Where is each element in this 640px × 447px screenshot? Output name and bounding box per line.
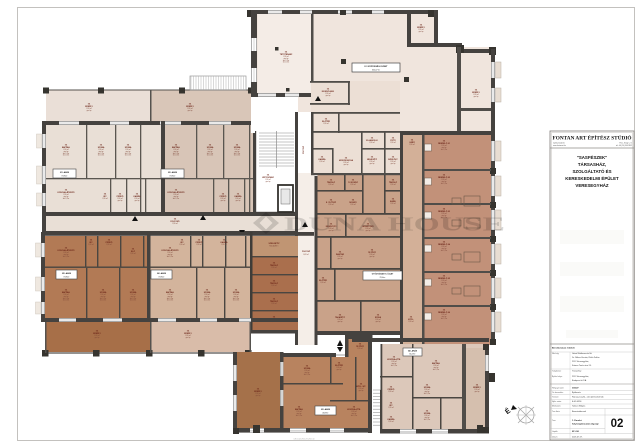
svg-text:MELEGÍTŐ: MELEGÍTŐ bbox=[367, 158, 377, 161]
svg-text:12,45 m2: 12,45 m2 bbox=[88, 244, 94, 246]
svg-text:TETŐTERASZ: TETŐTERASZ bbox=[280, 53, 293, 56]
svg-text:RENDELŐ 05: RENDELŐ 05 bbox=[438, 277, 450, 280]
svg-text:RENDELŐ 02: RENDELŐ 02 bbox=[438, 176, 450, 179]
svg-text:bm: 2,70m: bm: 2,70m bbox=[441, 183, 448, 185]
svg-text:KONYHA+ÉTK.: KONYHA+ÉTK. bbox=[387, 358, 401, 361]
svg-text:KONYHA+ÉTKEZŐ: KONYHA+ÉTKEZŐ bbox=[58, 191, 75, 194]
svg-text:NAPPALI: NAPPALI bbox=[295, 408, 304, 411]
svg-text:0,90 1,50 0,90 2,70 0,90: 0,90 1,50 0,90 2,70 0,90 1,50 bbox=[294, 439, 315, 441]
svg-text:12,45 m2: 12,45 m2 bbox=[167, 252, 173, 254]
svg-text:VÁRÓ: VÁRÓ bbox=[409, 141, 415, 144]
svg-text:12,45 m2: 12,45 m2 bbox=[172, 223, 178, 225]
svg-text:bm: 2,70m: bm: 2,70m bbox=[351, 415, 358, 417]
svg-text:12,45 m2: 12,45 m2 bbox=[130, 253, 136, 255]
svg-text:Terv:: Terv: bbox=[552, 420, 556, 422]
svg-text:bm: 2,70m: bm: 2,70m bbox=[130, 298, 137, 300]
svg-text:SZOBA: SZOBA bbox=[125, 146, 132, 149]
svg-text:12,45 m2: 12,45 m2 bbox=[100, 294, 106, 296]
svg-text:12,45 m2: 12,45 m2 bbox=[474, 389, 480, 391]
svg-text:2021.07.27.: 2021.07.27. bbox=[572, 437, 583, 439]
svg-text:12,45 m2: 12,45 m2 bbox=[220, 198, 226, 200]
svg-text:Építés helye:: Építés helye: bbox=[552, 375, 563, 378]
svg-text:12,45 m2: 12,45 m2 bbox=[325, 93, 331, 95]
svg-text:12,45 m2: 12,45 m2 bbox=[441, 179, 447, 181]
svg-text:12,45 m2: 12,45 m2 bbox=[473, 94, 479, 96]
svg-text:bm: 2,70m: bm: 2,70m bbox=[63, 256, 70, 258]
svg-text:12,45 m2: 12,45 m2 bbox=[323, 123, 329, 125]
svg-text:bm: 2,70m: bm: 2,70m bbox=[130, 300, 137, 302]
svg-text:01 LAKÁS: 01 LAKÁS bbox=[60, 171, 70, 174]
svg-text:Dátum:: Dátum: bbox=[552, 436, 558, 439]
svg-text:FOLYOSÓ: FOLYOSÓ bbox=[302, 250, 311, 253]
svg-text:12,45 m2: 12,45 m2 bbox=[351, 411, 357, 413]
svg-text:RENDELŐ 01: RENDELŐ 01 bbox=[438, 142, 450, 145]
svg-text:73,95m²: 73,95m² bbox=[158, 276, 165, 279]
svg-text:12,45 m2: 12,45 m2 bbox=[357, 348, 363, 350]
svg-text:Öv. besorolás:: Öv. besorolás: bbox=[552, 391, 564, 394]
svg-text:bm: 2,70m: bm: 2,70m bbox=[173, 153, 180, 155]
svg-text:bm: 2,70m: bm: 2,70m bbox=[283, 60, 290, 62]
svg-text:12,45 m2: 12,45 m2 bbox=[204, 294, 210, 296]
svg-text:2112 Veresegyház,: 2112 Veresegyház, bbox=[572, 361, 589, 363]
svg-text:06 LAKÁS: 06 LAKÁS bbox=[157, 272, 167, 275]
svg-text:KAMRA: KAMRA bbox=[318, 158, 326, 161]
svg-text:ELŐTÉR: ELŐTÉR bbox=[319, 279, 327, 282]
svg-text:12,45 m2: 12,45 m2 bbox=[336, 367, 342, 369]
svg-text:03 LAKÁS: 03 LAKÁS bbox=[321, 408, 331, 411]
svg-text:12,45 m2: 12,45 m2 bbox=[63, 294, 69, 296]
svg-text:bm: 2,70m: bm: 2,70m bbox=[424, 419, 431, 421]
svg-text:12,45 m2: 12,45 m2 bbox=[350, 184, 356, 186]
svg-text:NAPPALI: NAPPALI bbox=[62, 146, 71, 149]
svg-text:bm: 2,70m: bm: 2,70m bbox=[433, 369, 440, 371]
svg-text:SZOBA: SZOBA bbox=[424, 386, 431, 389]
svg-text:12,45 m2: 12,45 m2 bbox=[441, 314, 447, 316]
svg-text:12,45 m2: 12,45 m2 bbox=[388, 407, 394, 409]
svg-text:KAMRA: KAMRA bbox=[234, 195, 242, 198]
svg-text:Bemutatótervek: Bemutatótervek bbox=[572, 410, 586, 413]
svg-text:Ö. MOSDÓ: Ö. MOSDÓ bbox=[348, 181, 358, 184]
svg-text:05 LAKÁS: 05 LAKÁS bbox=[62, 272, 72, 275]
svg-text:SZELEKTÍV: SZELEKTÍV bbox=[268, 242, 280, 245]
svg-text:bm: 2,70m: bm: 2,70m bbox=[125, 153, 132, 155]
svg-text:KAMRA: KAMRA bbox=[220, 241, 228, 244]
svg-text:SZOBA: SZOBA bbox=[130, 291, 137, 294]
svg-text:tel.: 06 (20) 944 2892: tel.: 06 (20) 944 2892 bbox=[616, 144, 632, 147]
svg-text:12,45 m2: 12,45 m2 bbox=[234, 149, 240, 151]
svg-text:FŰTŐ: FŰTŐ bbox=[390, 139, 396, 142]
svg-text:helyiségkimutató alaprajz: helyiségkimutató alaprajz bbox=[572, 423, 600, 426]
svg-text:12,45 m2: 12,45 m2 bbox=[63, 194, 69, 196]
svg-text:12,45 m2: 12,45 m2 bbox=[328, 204, 334, 206]
svg-text:12,45 m2: 12,45 m2 bbox=[265, 179, 271, 181]
svg-text:SZOBA: SZOBA bbox=[304, 367, 311, 370]
svg-text:ELŐ: ELŐ bbox=[131, 250, 135, 253]
svg-text:SZOBA: SZOBA bbox=[233, 291, 240, 294]
svg-text:bm: 2,70m: bm: 2,70m bbox=[204, 298, 211, 300]
svg-text:ERKÉLY: ERKÉLY bbox=[93, 332, 101, 335]
svg-text:12,45 m2: 12,45 m2 bbox=[167, 294, 173, 296]
svg-text:bm: 2,70m: bm: 2,70m bbox=[234, 155, 241, 157]
svg-text:12,45 m2: 12,45 m2 bbox=[375, 319, 381, 321]
svg-text:73,95m²: 73,95m² bbox=[63, 276, 70, 279]
svg-text:KARB.: KARB. bbox=[390, 200, 396, 203]
svg-text:12,45 m2: 12,45 m2 bbox=[369, 161, 375, 163]
svg-text:Beruházásban érdekelt: Beruházásban érdekelt bbox=[552, 347, 575, 350]
svg-text:NAPPALI: NAPPALI bbox=[432, 362, 441, 365]
svg-text:bm: 2,70m: bm: 2,70m bbox=[441, 284, 448, 286]
svg-text:SZEM.ÖLT.: SZEM.ÖLT. bbox=[388, 158, 398, 161]
svg-text:SZOBA: SZOBA bbox=[234, 146, 241, 149]
svg-text:12,45 m2: 12,45 m2 bbox=[187, 108, 193, 110]
svg-text:bm: 2,70m: bm: 2,70m bbox=[125, 155, 132, 157]
svg-text:12,45 m2: 12,45 m2 bbox=[369, 142, 375, 144]
svg-text:Nyilv. szám:: Nyilv. szám: bbox=[552, 401, 562, 403]
svg-text:12,45 m2: 12,45 m2 bbox=[424, 389, 430, 391]
svg-text:bm: 2,70m: bm: 2,70m bbox=[391, 365, 398, 367]
svg-text:Rácsay László - okl. építészmé: Rácsay László - okl. építészmérnök bbox=[572, 396, 604, 399]
svg-text:SZOBA: SZOBA bbox=[204, 291, 211, 294]
svg-text:RENDELŐ 04: RENDELŐ 04 bbox=[438, 243, 451, 246]
svg-text:bm: 2,70m: bm: 2,70m bbox=[167, 256, 174, 258]
svg-text:IV. KÖZÖSSÉGI SZINT: IV. KÖZÖSSÉGI SZINT bbox=[364, 65, 388, 68]
svg-text:KAMRA: KAMRA bbox=[133, 195, 141, 198]
svg-text:12,45 m2: 12,45 m2 bbox=[320, 282, 326, 284]
svg-text:12,45 m2: 12,45 m2 bbox=[255, 393, 261, 395]
svg-text:352,07 m²: 352,07 m² bbox=[372, 69, 380, 72]
svg-text:12,45 m2: 12,45 m2 bbox=[388, 391, 394, 393]
svg-text:12,45 m2: 12,45 m2 bbox=[86, 108, 92, 110]
svg-text:Takács Mátyás: Takács Mátyás bbox=[572, 405, 585, 408]
svg-text:RENDELŐ 03: RENDELŐ 03 bbox=[438, 210, 450, 213]
svg-text:304027: 304027 bbox=[572, 387, 580, 390]
svg-text:12,45 m2: 12,45 m2 bbox=[221, 244, 227, 246]
svg-text:12,45 m2: 12,45 m2 bbox=[390, 184, 396, 186]
svg-text:Budapest út 1/A: Budapest út 1/A bbox=[572, 379, 587, 382]
svg-text:12,45 m2: 12,45 m2 bbox=[271, 285, 277, 287]
svg-text:bm: 2,70m: bm: 2,70m bbox=[207, 155, 214, 157]
svg-text:TÁROLÓ: TÁROLÓ bbox=[389, 181, 398, 184]
svg-text:1. Emelet: 1. Emelet bbox=[572, 419, 582, 422]
svg-text:73,95m²: 73,95m² bbox=[169, 175, 176, 178]
svg-text:FÜRDŐ: FÜRDŐ bbox=[220, 195, 227, 198]
svg-text:12,45 m2: 12,45 m2 bbox=[424, 415, 430, 417]
svg-text:ERKÉLY: ERKÉLY bbox=[186, 105, 194, 108]
svg-text:bm: 2,70m: bm: 2,70m bbox=[233, 298, 240, 300]
svg-text:ERKÉLY: ERKÉLY bbox=[254, 390, 262, 393]
svg-text:TÁROLÓ: TÁROLÓ bbox=[270, 300, 279, 303]
svg-text:Társasház: Társasház bbox=[572, 371, 581, 373]
svg-text:bm: 2,70m: bm: 2,70m bbox=[424, 393, 431, 395]
svg-text:bm: 2,70m: bm: 2,70m bbox=[441, 250, 448, 252]
svg-text:02: 02 bbox=[611, 418, 624, 430]
svg-text:48,87m²: 48,87m² bbox=[322, 412, 329, 415]
svg-text:bm: 2,70m: bm: 2,70m bbox=[204, 300, 211, 302]
svg-text:KÖZL. WC: KÖZL. WC bbox=[356, 385, 366, 388]
svg-text:ERKÉLY: ERKÉLY bbox=[184, 332, 192, 335]
svg-text:FÜRDŐ: FÜRDŐ bbox=[196, 241, 203, 244]
svg-text:12,45 m2: 12,45 m2 bbox=[125, 149, 131, 151]
svg-text:12,45 m2: 12,45 m2 bbox=[304, 370, 310, 372]
svg-text:12,45 m2: 12,45 m2 bbox=[196, 244, 202, 246]
svg-text:FÜRDŐ: FÜRDŐ bbox=[117, 195, 124, 198]
svg-text:bm: 2,70m: bm: 2,70m bbox=[233, 300, 240, 302]
svg-text:bm: 2,70m: bm: 2,70m bbox=[234, 153, 241, 155]
svg-text:E-02-0596: E-02-0596 bbox=[572, 401, 582, 403]
svg-text:ELŐTÉR: ELŐTÉR bbox=[322, 120, 330, 123]
svg-text:K. ÖLTÖZŐ: K. ÖLTÖZŐ bbox=[326, 201, 337, 204]
svg-text:12,45 m2: 12,45 m2 bbox=[390, 161, 396, 163]
svg-text:TÁROLÓ: TÁROLÓ bbox=[327, 181, 336, 184]
svg-text:12,45 m2: 12,45 m2 bbox=[117, 198, 123, 200]
svg-text:Lépték:: Lépték: bbox=[552, 430, 558, 433]
svg-text:Helyrajzi szám:: Helyrajzi szám: bbox=[552, 388, 565, 390]
svg-text:ÖLTÖZŐ: ÖLTÖZŐ bbox=[356, 345, 364, 348]
svg-text:ERKÉLY: ERKÉLY bbox=[85, 105, 93, 108]
svg-text:KONYHA+ÉTKEZŐ: KONYHA+ÉTKEZŐ bbox=[162, 249, 179, 252]
svg-text:RENDELŐ 06: RENDELŐ 06 bbox=[438, 311, 450, 314]
svg-text:12,45 m2: 12,45 m2 bbox=[441, 246, 447, 248]
svg-text:FÜRDŐ: FÜRDŐ bbox=[388, 388, 395, 391]
svg-text:12,45 m2: 12,45 m2 bbox=[98, 149, 104, 151]
svg-text:73,95m²: 73,95m² bbox=[61, 175, 68, 178]
svg-text:MOSDÓ: MOSDÓ bbox=[349, 201, 357, 204]
svg-text:TÁROLÓ: TÁROLÓ bbox=[270, 282, 279, 285]
svg-text:SZOLGÁLTATÓ ÉS: SZOLGÁLTATÓ ÉS bbox=[572, 169, 611, 174]
svg-text:12,45 m2: 12,45 m2 bbox=[433, 365, 439, 367]
svg-text:bm: 2,70m: bm: 2,70m bbox=[98, 155, 105, 157]
svg-text:RAKTÁR: RAKTÁR bbox=[336, 253, 345, 256]
svg-text:TÁROLÓ: TÁROLÓ bbox=[270, 264, 279, 267]
svg-text:12,45 m2: 12,45 m2 bbox=[134, 198, 140, 200]
svg-text:bm: 2,70m: bm: 2,70m bbox=[63, 300, 70, 302]
svg-text:bm: 2,70m: bm: 2,70m bbox=[63, 155, 70, 157]
svg-text:NAPPALI: NAPPALI bbox=[62, 291, 71, 294]
svg-text:ERKÉLY: ERKÉLY bbox=[473, 386, 481, 389]
svg-text:bm: 2,70m: bm: 2,70m bbox=[63, 298, 70, 300]
svg-text:12,45 m2: 12,45 m2 bbox=[106, 244, 112, 246]
svg-text:SZOBA: SZOBA bbox=[424, 412, 431, 415]
svg-text:ELŐTÉR: ELŐTÉR bbox=[335, 364, 343, 367]
svg-text:12,45 m2: 12,45 m2 bbox=[328, 184, 334, 186]
svg-text:Tulajdonos:: Tulajdonos: bbox=[552, 371, 562, 373]
svg-text:02 LAKÁS: 02 LAKÁS bbox=[168, 171, 178, 174]
svg-text:MOSÓKONYHA: MOSÓKONYHA bbox=[339, 159, 354, 162]
svg-text:DUNA HOUSE: DUNA HOUSE bbox=[284, 215, 505, 236]
svg-text:12,45 m2: 12,45 m2 bbox=[337, 319, 343, 321]
svg-text:12,45 m2: 12,45 m2 bbox=[179, 244, 185, 246]
svg-text:bm: 2,70m: bm: 2,70m bbox=[304, 374, 311, 376]
svg-text:12,45 m2: 12,45 m2 bbox=[441, 145, 447, 147]
svg-text:12,45 m2: 12,45 m2 bbox=[409, 144, 415, 146]
svg-text:12,45 m2: 12,45 m2 bbox=[388, 421, 394, 423]
svg-text:bm: 2,70m: bm: 2,70m bbox=[100, 300, 107, 302]
svg-text:12,45 m2: 12,45 m2 bbox=[391, 361, 397, 363]
svg-text:Munkatárs:: Munkatárs: bbox=[552, 405, 561, 408]
svg-text:Gázsi Mattkezervíz kft.: Gázsi Mattkezervíz kft. bbox=[572, 352, 593, 355]
svg-text:ERKÉLY: ERKÉLY bbox=[472, 91, 480, 94]
svg-text:"SASFÉSZEK": "SASFÉSZEK" bbox=[577, 155, 608, 160]
svg-text:KONYHA+ÉTKEZŐ: KONYHA+ÉTKEZŐ bbox=[168, 191, 185, 194]
svg-text:NAPPALI: NAPPALI bbox=[172, 146, 181, 149]
svg-text:12,45 m2: 12,45 m2 bbox=[63, 252, 69, 254]
svg-text:VERESEGYHÁZ: VERESEGYHÁZ bbox=[575, 183, 608, 188]
svg-text:KAMRA: KAMRA bbox=[387, 418, 395, 421]
svg-text:IRODA: IRODA bbox=[375, 316, 382, 319]
svg-text:12,45 m2: 12,45 m2 bbox=[343, 162, 349, 164]
svg-text:12,45 m2: 12,45 m2 bbox=[337, 256, 343, 258]
svg-text:12,45 m2: 12,45 m2 bbox=[173, 194, 179, 196]
svg-text:TAKARÍTÓ: TAKARÍTÓ bbox=[335, 316, 345, 319]
svg-text:bm: 2,70m: bm: 2,70m bbox=[167, 300, 174, 302]
svg-text:bm: 2,70m: bm: 2,70m bbox=[441, 149, 448, 151]
svg-text:12,45 m2: 12,45 m2 bbox=[173, 149, 179, 151]
svg-text:12,45 m2: 12,45 m2 bbox=[63, 149, 69, 151]
svg-text:ERKÉLY: ERKÉLY bbox=[417, 26, 425, 29]
svg-text:12,45 m2: 12,45 m2 bbox=[296, 411, 302, 413]
svg-text:12,45 m2: 12,45 m2 bbox=[390, 203, 396, 205]
svg-text:Név/cég:: Név/cég: bbox=[552, 353, 560, 355]
svg-text:12,45 m2: 12,45 m2 bbox=[358, 388, 364, 390]
svg-text:bm: 2,70m: bm: 2,70m bbox=[173, 155, 180, 157]
svg-text:FOLYOSÓ: FOLYOSÓ bbox=[170, 220, 180, 223]
svg-text:www.fontanart.hu: www.fontanart.hu bbox=[553, 144, 566, 147]
svg-text:12,45 m2: 12,45 m2 bbox=[233, 294, 239, 296]
svg-text:bm: 2,70m: bm: 2,70m bbox=[63, 198, 70, 200]
svg-text:2112 Veresegyház,: 2112 Veresegyház, bbox=[572, 376, 589, 378]
svg-text:56,28 m2: 56,28 m2 bbox=[303, 254, 309, 256]
svg-text:GYÓGYÁSZATI S. ÜZLET: GYÓGYÁSZATI S. ÜZLET bbox=[372, 273, 394, 276]
svg-text:M 1:50: M 1:50 bbox=[572, 431, 580, 433]
svg-text:ÖLTÖZŐ: ÖLTÖZŐ bbox=[368, 251, 376, 254]
svg-text:bm: 2,70m: bm: 2,70m bbox=[63, 153, 70, 155]
svg-text:KONYHA+ÉTKEZŐ: KONYHA+ÉTKEZŐ bbox=[58, 249, 75, 252]
svg-text:12,45 m2: 12,45 m2 bbox=[408, 321, 414, 323]
svg-text:12,45 m2: 12,45 m2 bbox=[350, 204, 356, 206]
svg-text:bm: 2,70m: bm: 2,70m bbox=[441, 318, 448, 320]
svg-text:12,45 m2: 12,45 m2 bbox=[418, 29, 424, 31]
svg-text:FONTAN ART ÉPÍTÉSZ STÚDIÓ: FONTAN ART ÉPÍTÉSZ STÚDIÓ bbox=[553, 136, 632, 142]
svg-text:KÖZL.: KÖZL. bbox=[408, 318, 414, 321]
svg-text:12,45 m2: 12,45 m2 bbox=[185, 335, 191, 337]
svg-text:Dr. Rákos Kerstin, Rákó Zoltán: Dr. Rákos Kerstin, Rákó Zoltán bbox=[572, 356, 599, 359]
svg-text:12,45 m2: 12,45 m2 bbox=[441, 280, 447, 282]
svg-text:bm: 2,70m: bm: 2,70m bbox=[167, 298, 174, 300]
svg-text:FOLYOSÓ: FOLYOSÓ bbox=[302, 145, 305, 154]
svg-text:12,45 m2: 12,45 m2 bbox=[102, 198, 108, 200]
svg-text:bm: 2,70m: bm: 2,70m bbox=[283, 62, 290, 64]
svg-text:SZOBA: SZOBA bbox=[207, 146, 214, 149]
svg-text:12,45 m2: 12,45 m2 bbox=[319, 161, 325, 163]
svg-text:SZOBA: SZOBA bbox=[98, 146, 105, 149]
svg-text:12,45 m2: 12,45 m2 bbox=[94, 335, 100, 337]
svg-text:KONYHA+ÉTK.: KONYHA+ÉTK. bbox=[347, 408, 361, 411]
svg-text:12,45 m2: 12,45 m2 bbox=[207, 149, 213, 151]
svg-text:bm: 2,70m: bm: 2,70m bbox=[207, 153, 214, 155]
svg-text:KERESKEDELMI ÉPÜLET: KERESKEDELMI ÉPÜLET bbox=[565, 176, 619, 181]
svg-text:FÜRDŐ: FÜRDŐ bbox=[106, 241, 113, 244]
svg-text:66,27m²: 66,27m² bbox=[409, 353, 416, 356]
svg-text:bm: 2,70m: bm: 2,70m bbox=[296, 415, 303, 417]
svg-text:Építkezés: Építkezés bbox=[572, 391, 581, 394]
svg-text:TÁRSASHÁZ,: TÁRSASHÁZ, bbox=[578, 162, 606, 167]
svg-text:Terv fázis:: Terv fázis: bbox=[552, 411, 561, 413]
svg-text:LÉPCSŐHÁZ: LÉPCSŐHÁZ bbox=[262, 176, 275, 179]
svg-text:MOSDÓ AKM.: MOSDÓ AKM. bbox=[322, 90, 335, 93]
svg-text:12,45 m2: 12,45 m2 bbox=[130, 294, 136, 296]
svg-text:12,45 m2: 12,45 m2 bbox=[369, 254, 375, 256]
svg-text:bm: 2,70m: bm: 2,70m bbox=[98, 153, 105, 155]
svg-text:Katona Teréz utca 24.: Katona Teréz utca 24. bbox=[572, 364, 592, 367]
svg-text:Tervező:: Tervező: bbox=[552, 397, 559, 399]
svg-text:12,45 m2: 12,45 m2 bbox=[271, 267, 277, 269]
svg-text:04 LAKÁS: 04 LAKÁS bbox=[408, 350, 418, 353]
svg-text:12,45 m2: 12,45 m2 bbox=[235, 198, 241, 200]
svg-text:bm: 2,70m: bm: 2,70m bbox=[173, 198, 180, 200]
svg-text:12,45 m2: 12,45 m2 bbox=[271, 303, 277, 305]
svg-text:VILLAMOS K.: VILLAMOS K. bbox=[366, 139, 379, 142]
svg-text:12,45 m2: 12,45 m2 bbox=[283, 56, 289, 58]
svg-text:12,45 m2: 12,45 m2 bbox=[390, 142, 396, 144]
svg-text:bm: 2,70m: bm: 2,70m bbox=[100, 298, 107, 300]
svg-text:SZOBA: SZOBA bbox=[100, 291, 107, 294]
svg-text:NAPPALI: NAPPALI bbox=[166, 291, 175, 294]
